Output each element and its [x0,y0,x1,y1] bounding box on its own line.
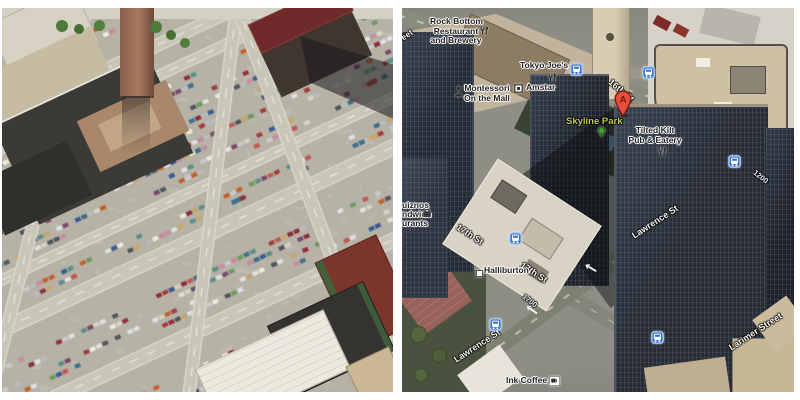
tree [56,20,68,32]
clock-face [606,33,614,41]
tree [150,21,162,33]
tree [414,368,428,382]
tree [410,326,427,343]
tree [94,20,105,31]
poi-line: Pub & Eatery [624,136,686,146]
google-maps-oblique-view: eet 16th St 17th St 17th St Lawrence St … [402,8,794,392]
tower-shadow [122,96,150,154]
restaurant-icon [658,147,666,156]
transit-station-icon [570,63,583,76]
tree [432,348,447,363]
restaurant-icon [548,73,556,82]
bag-icon [422,208,432,218]
rooftop-unit [490,179,527,214]
person-icon [454,86,463,97]
transit-station-icon [728,155,741,168]
transit-station-icon [651,331,664,344]
poi-rock-bottom: Rock Bottom Restaurant and Brewery [430,17,482,46]
brick-tower [120,8,154,98]
rooftop-vent [696,58,710,67]
transit-station-icon [489,318,502,331]
poi-tokyo-joes: Tokyo Joe's [520,61,568,71]
poi-quiznos-fragment: urants [402,219,428,229]
transit-station-icon [642,66,655,79]
svg-text:A: A [620,95,627,106]
transit-station-icon [509,232,522,245]
restaurant-icon [480,26,488,35]
poi-line: On the Mall [464,94,510,104]
before-after-aerial-comparison: eet 16th St 17th St 17th St Lawrence St … [0,0,800,400]
coffee-icon [549,376,560,386]
building-icon [514,84,523,93]
tree [166,30,176,40]
poi-ink-coffee: Ink Coffee [506,376,547,386]
poi-line: and Brewery [430,36,482,46]
tree-icon [597,127,606,138]
tree [180,38,190,48]
rooftop-units [730,66,766,94]
poi-montessori: Montessori On the Mall [464,84,510,103]
rooftop-unit [518,218,564,261]
poi-halliburton: Halliburton [484,266,529,276]
historic-aerial-photo [2,8,393,392]
square-icon [476,270,483,277]
map-marker-a: A [614,90,632,118]
poi-tilted-kilt: Tilted Kilt Pub & Eatery [624,126,686,145]
tree [74,24,84,34]
poi-amstar: Amstar [526,83,555,93]
poi-skyline-park: Skyline Park [566,116,623,127]
